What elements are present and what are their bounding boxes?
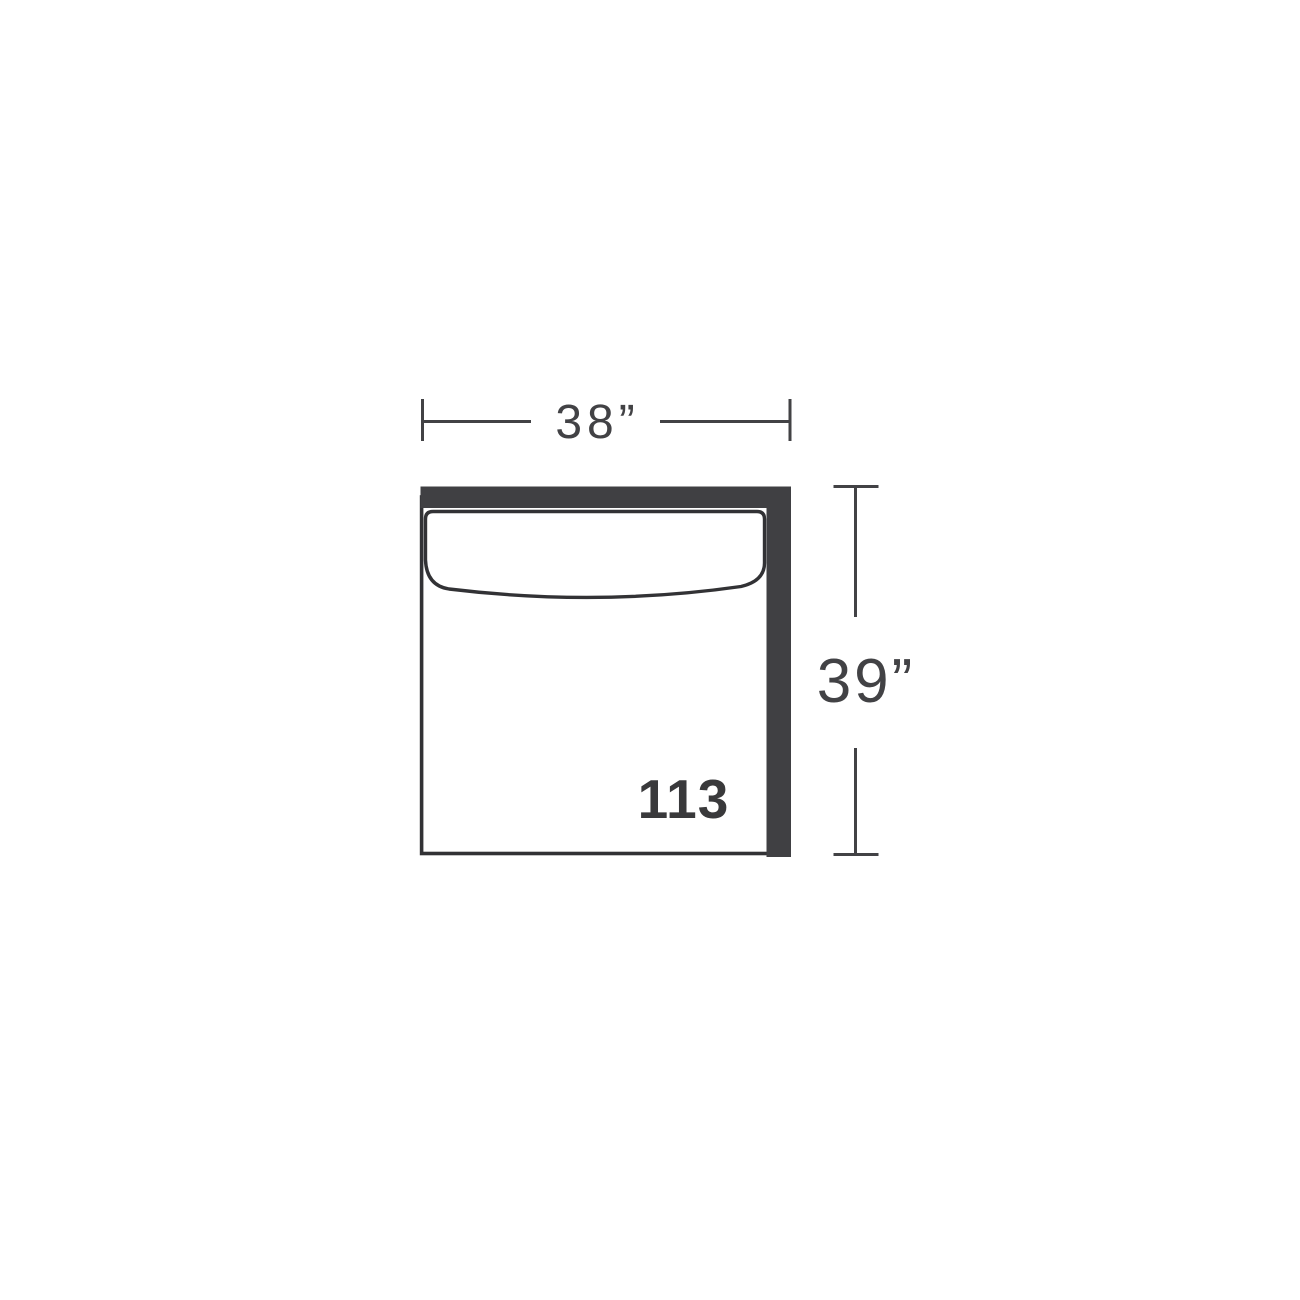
height-dim-label: 39” <box>817 647 916 716</box>
width-dimension: 38” <box>423 396 791 449</box>
right-arm-bar <box>767 487 792 858</box>
backrest-bar <box>421 487 792 509</box>
module-number-label: 113 <box>638 768 730 830</box>
furniture-dimension-diagram: 38” 39” 113 <box>0 0 1300 1300</box>
sofa-module: 113 <box>421 487 792 858</box>
height-dimension: 39” <box>817 487 916 855</box>
width-dim-label: 38” <box>555 396 639 449</box>
sofa-module-top-view: 38” 39” 113 <box>0 0 1300 1300</box>
seat-cushion <box>426 512 765 598</box>
